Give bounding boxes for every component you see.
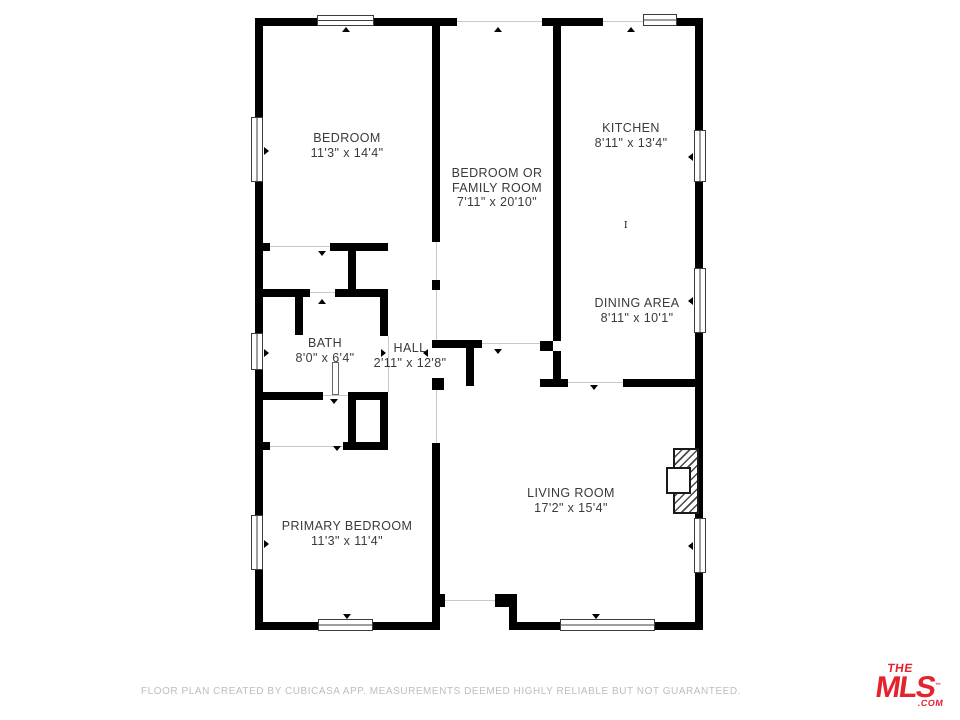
window (694, 268, 706, 333)
wall (695, 182, 703, 268)
window (643, 14, 677, 26)
wall (466, 348, 474, 386)
wall (255, 392, 323, 400)
window (694, 130, 706, 182)
room-label-bedroom-or-family-room: BEDROOM OR FAMILY ROOM 7'11" x 20'10" (452, 166, 543, 210)
room-label-living-room: LIVING ROOM 17'2" x 15'4" (527, 486, 615, 515)
window (317, 15, 374, 26)
wall (255, 182, 263, 333)
wall (553, 26, 561, 341)
door-tick-icon (318, 299, 326, 304)
window (560, 619, 655, 631)
door-tick-icon (627, 27, 635, 32)
wall (255, 26, 263, 117)
wall (373, 622, 440, 630)
wall (623, 379, 703, 387)
wall (655, 622, 703, 630)
door-tick-icon (688, 153, 693, 161)
wall (509, 622, 560, 630)
wall (432, 26, 440, 242)
door-tick-icon (330, 399, 338, 404)
wall (509, 607, 517, 622)
wall (432, 280, 440, 290)
door-tick-icon (264, 147, 269, 155)
wall (330, 243, 388, 251)
wall (540, 341, 553, 351)
door-tick-icon (333, 446, 341, 451)
door-tick-icon (318, 251, 326, 256)
room-label-primary-bedroom: PRIMARY BEDROOM 11'3" x 11'4" (282, 519, 413, 548)
door-opening (445, 600, 495, 601)
door-opening (436, 390, 437, 443)
wall (432, 378, 444, 390)
door-tick-icon (590, 385, 598, 390)
wall (255, 243, 270, 251)
window (251, 333, 263, 370)
wall (540, 379, 568, 387)
door-tick-icon (494, 349, 502, 354)
wall (380, 289, 388, 336)
window (694, 518, 706, 573)
wall (255, 570, 263, 622)
door-tick-icon (494, 27, 502, 32)
floor-plan: IBEDROOM 11'3" x 14'4"BEDROOM OR FAMILY … (0, 0, 960, 720)
wall (343, 442, 388, 450)
door-tick-icon (264, 349, 269, 357)
room-label-kitchen: KITCHEN 8'11" x 13'4" (595, 121, 668, 150)
door-tick-icon (342, 27, 350, 32)
door-tick-icon (688, 297, 693, 305)
wall (695, 26, 703, 130)
wall (495, 594, 517, 607)
wall (295, 297, 303, 335)
wall (432, 443, 440, 622)
door-opening (482, 343, 540, 344)
door-opening (436, 242, 437, 280)
wall (542, 18, 603, 26)
door-opening (568, 382, 623, 383)
wall (348, 400, 356, 447)
door-opening (310, 292, 335, 293)
door-tick-icon (343, 614, 351, 619)
room-label-hall: HALL 2'11" x 12'8" (374, 341, 447, 370)
window (318, 619, 373, 631)
wall (255, 622, 318, 630)
wall (255, 442, 270, 450)
wall (677, 18, 703, 26)
wall (255, 289, 310, 297)
room-label-dining-area: DINING AREA 8'11" x 10'1" (595, 296, 680, 325)
section-marker: I (624, 222, 628, 231)
door-opening (436, 290, 437, 340)
fireplace-firebox (666, 467, 691, 494)
page: IBEDROOM 11'3" x 14'4"BEDROOM OR FAMILY … (0, 0, 960, 720)
door-opening (457, 21, 542, 22)
wall (695, 573, 703, 622)
door-tick-icon (592, 614, 600, 619)
door-opening (323, 395, 348, 396)
door-opening (270, 246, 330, 247)
window (251, 117, 263, 182)
wall (374, 18, 457, 26)
themls-logo: THE MLS™ .COM (871, 663, 951, 707)
door-tick-icon (264, 540, 269, 548)
door-leaf (332, 362, 339, 395)
room-label-bedroom: BEDROOM 11'3" x 14'4" (311, 131, 384, 160)
wall (255, 18, 317, 26)
door-opening (603, 21, 643, 22)
logo-tm-mark: ™ (934, 683, 941, 689)
logo-mls-text: MLS™ (874, 674, 950, 700)
window (251, 515, 263, 570)
room-label-bath: BATH 8'0" x 6'4" (295, 336, 354, 365)
disclaimer-text: FLOOR PLAN CREATED BY CUBICASA APP. MEAS… (141, 686, 741, 697)
door-tick-icon (688, 542, 693, 550)
